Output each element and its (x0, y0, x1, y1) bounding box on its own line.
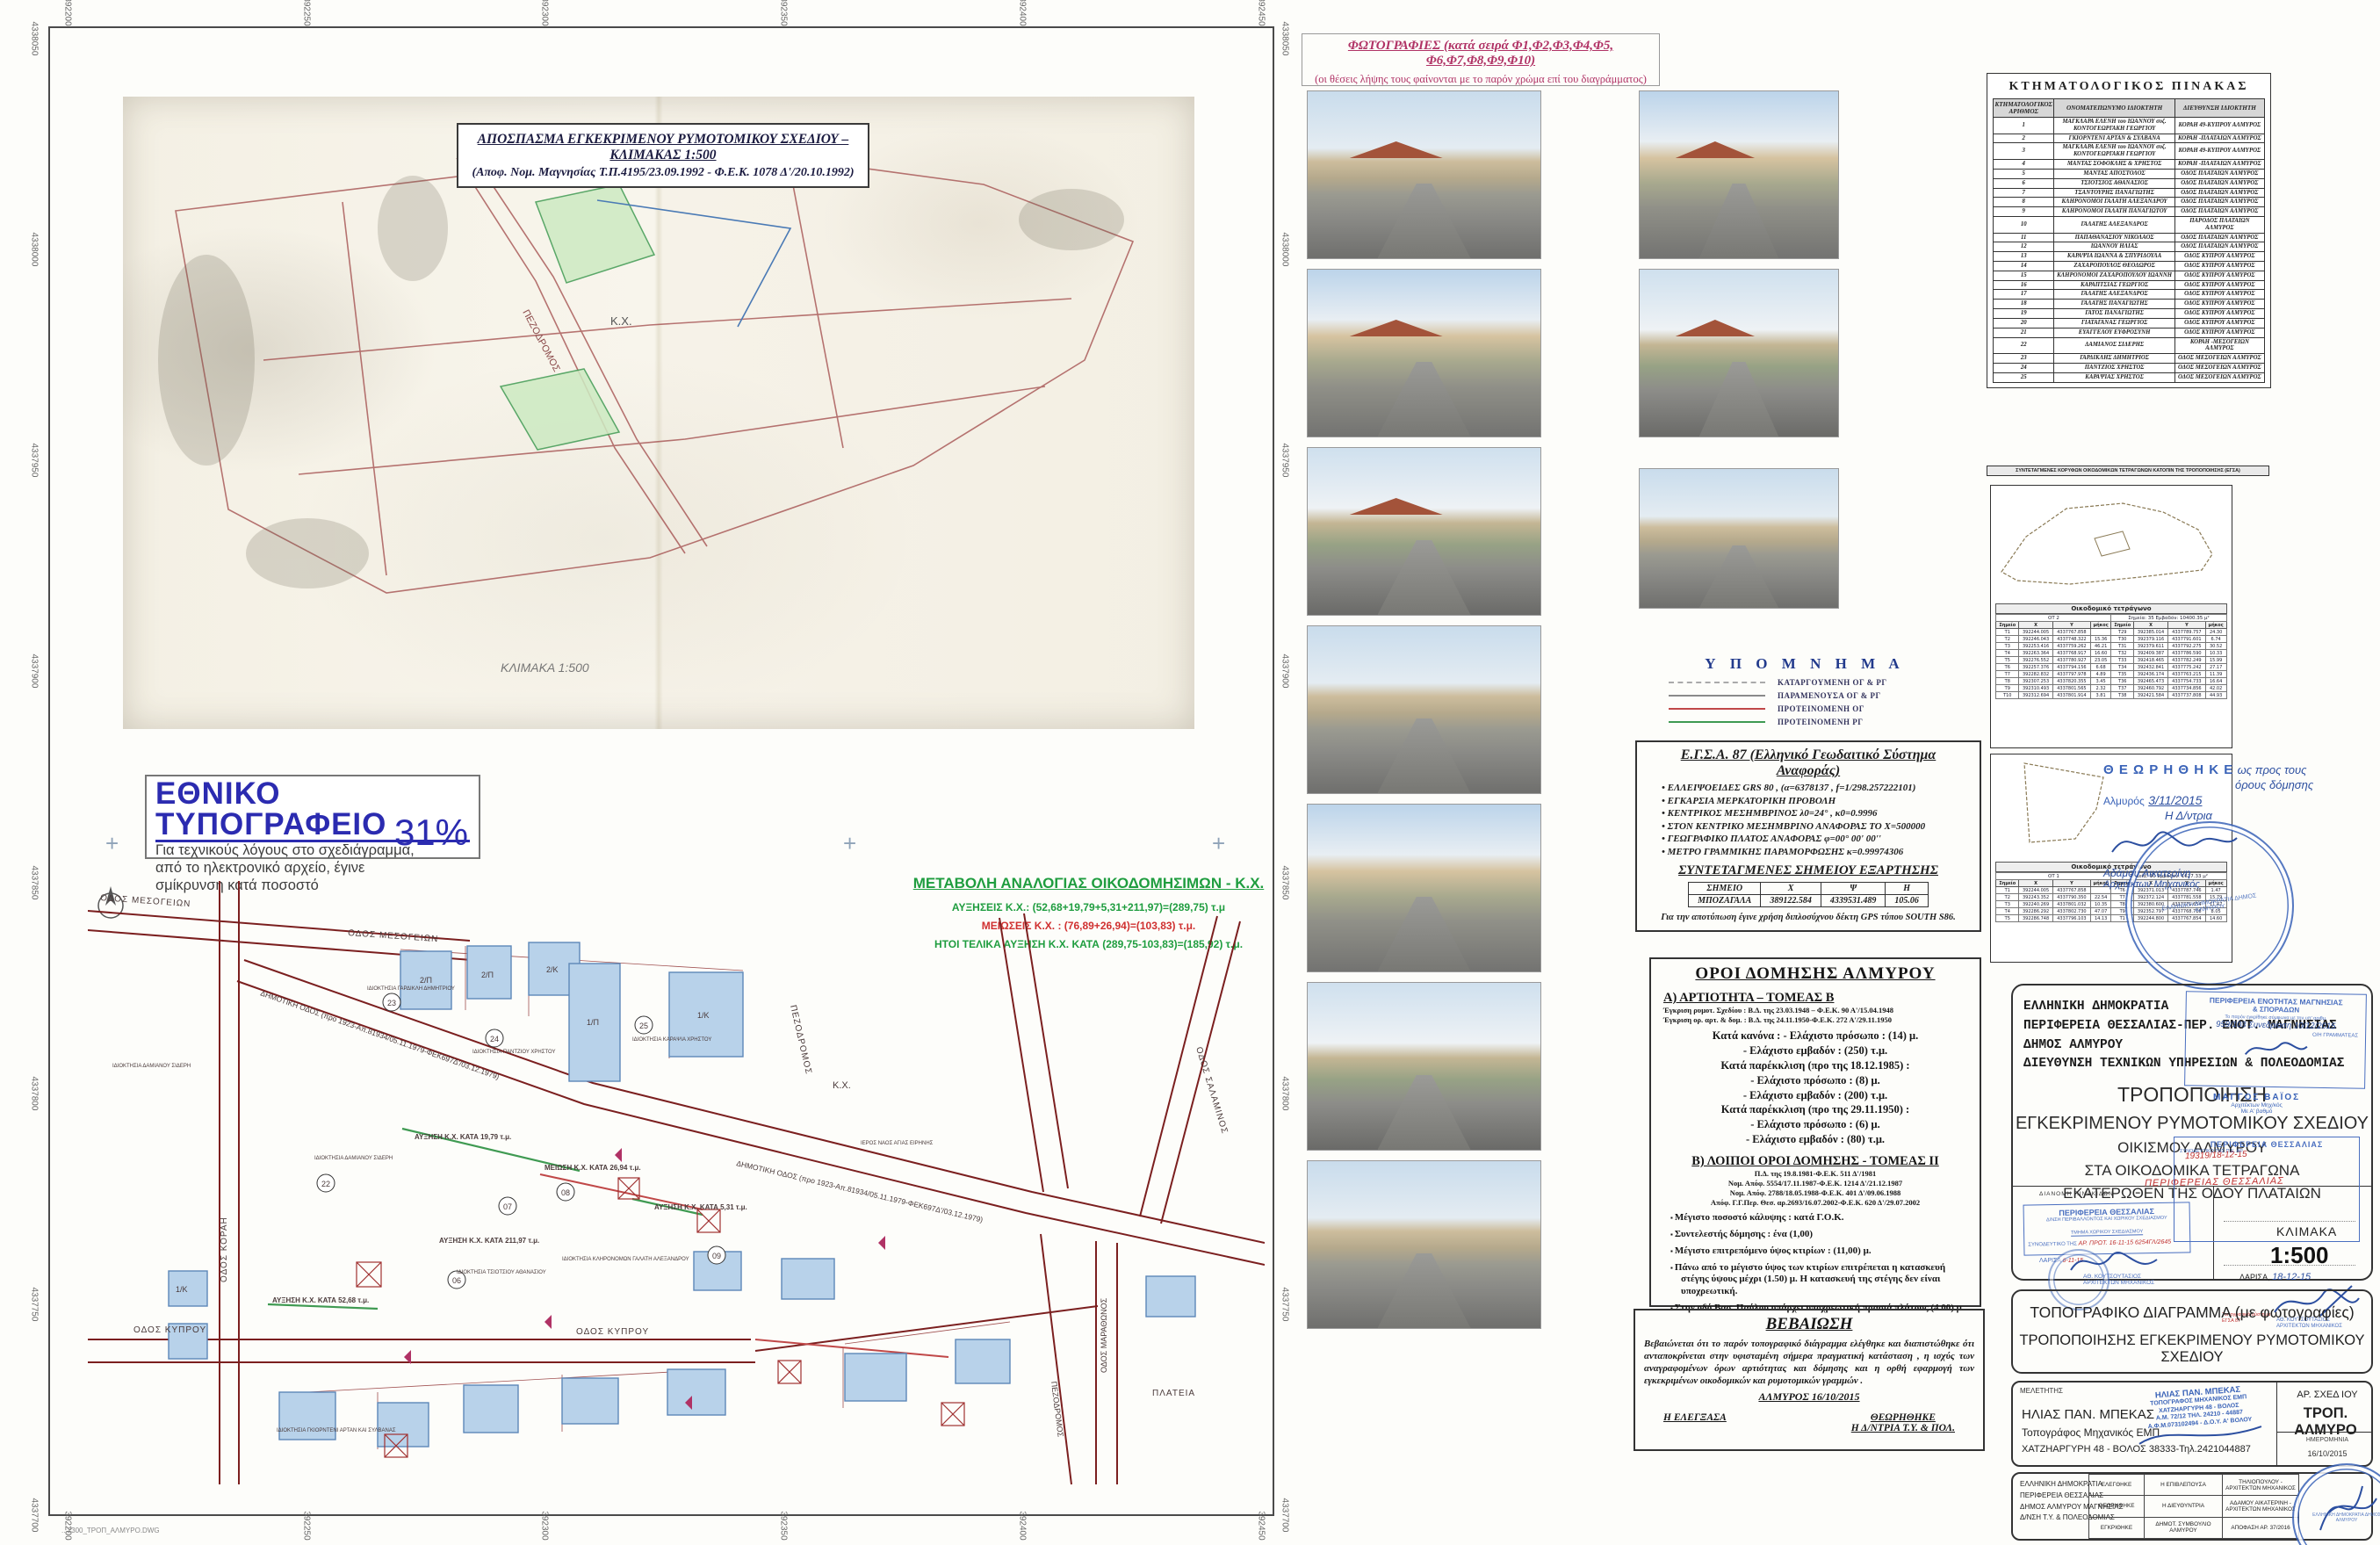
cadastral-row: 10ΓΑΛΑΤΗΣ ΑΛΕΞΑΝΔΡΟΣΠΑΡΟΔΟΣ ΠΛΑΤΑΙΩΝ ΑΛΜ… (1994, 216, 2264, 233)
cadastral-map: 06 07 08 09 22 23 24 25 2/Π2/Π 2/Κ1/Π 1/… (88, 865, 1265, 1493)
section-b-title: Β) ΛΟΙΠΟΙ ΟΡΟΙ ΔΟΜΗΣΗΣ - ΤΟΜΕΑΣ ΙΙ (1663, 1154, 1967, 1169)
grid-coord-label: 4337900 (1280, 654, 1290, 674)
cadastral-row: 22ΔΑΜΙΑΝΟΣ ΣΙΔΕΡΗΣΚΟΡΑΗ -ΜΕΣΟΓΕΙΩΝ ΑΛΜΥΡ… (1994, 337, 2264, 354)
excerpt-subtitle: (Αποφ. Νομ. Μαγνησίας Τ.Π.4195/23.09.199… (458, 166, 868, 180)
svg-text:2/Κ: 2/Κ (546, 965, 559, 974)
grid-coords-top: 392200392250392300392350392400392450 (48, 2, 1271, 21)
annotation-increase-1: ΑΥΞΗΣΗ Κ.Χ. ΚΑΤΑ 19,79 τ.μ. (415, 1133, 511, 1141)
svg-text:24: 24 (490, 1035, 499, 1043)
svg-text:08: 08 (561, 1188, 570, 1197)
excerpt-title-box: ΑΠΟΣΠΑΣΜΑ ΕΓΚΕΚΡΙΜΕΝΟΥ ΡΥΜΟΤΟΜΙΚΟΥ ΣΧΕΔΙ… (457, 123, 869, 188)
cadastral-row: 24ΠΑΝΤΖΙΟΣ ΧΡΗΣΤΟΣΟΔΟΣ ΜΕΣΟΓΕΙΩΝ ΑΛΜΥΡΟΣ (1994, 363, 2264, 372)
grid-coord-label: 392200 (54, 1511, 73, 1540)
kx-label: Κ.Χ. (833, 1080, 851, 1091)
building-rule-line: Κατά παρέκκλιση (προ της 29.11.1950) : (1663, 1102, 1967, 1117)
building-rule-line: Κατά παρέκκλιση (προ της 18.12.1985) : (1663, 1058, 1967, 1073)
grid-coord-label: 4337950 (1280, 444, 1290, 463)
maggos-name: ΜΑΓΓΟΣ ΒΑΪΟΣ Αρχιτέκτων Μηχ/κός Με Α' βα… (2213, 1093, 2300, 1115)
certification-title: ΒΕΒΑΙΩΣΗ (1644, 1315, 1974, 1334)
cadastral-row: 21ΕΥΑΓΓΕΛΟΥ ΕΥΦΡΟΣΥΝΗΟΔΟΣ ΚΥΠΡΟΥ ΑΛΜΥΡΟΣ (1994, 328, 2264, 337)
doc-type-2: ΤΡΟΠΟΠΟΙΗΣΗΣ ΕΓΚΕΚΡΙΜΕΝΟΥ ΡΥΜΟΤΟΜΙΚΟΥ ΣΧ… (2013, 1332, 2371, 1366)
title-block: ΕΛΛΗΝΙΚΗ ΔΗΜΟΚΡΑΤΙΑ ΠΕΡΙΦΕΡΕΙΑ ΘΕΣΣΑΛΙΑΣ… (2011, 984, 2373, 1281)
svg-text:09: 09 (712, 1252, 721, 1260)
surveyor-stamp: ΗΛΙΑΣ ΠΑΝ. ΜΠΕΚΑΣ ΤΟΠΟΓΡΑΦΟΣ ΜΗΧΑΝΙΚΟΣ Ε… (2121, 1383, 2278, 1451)
photo-f6 (1307, 982, 1541, 1151)
magnisias-approval-stamp: ΠΕΡΙΦΕΡΕΙΑ ΕΝΟΤΗΤΑΣ ΜΑΓΝΗΣΙΑΣ & ΣΠΟΡΑΔΩΝ… (2184, 991, 2367, 1089)
date-label: ΗΜΕΡΟΜΗΝΙΑ (2283, 1437, 2371, 1443)
certification-body: Βεβαιώνεται ότι το παρόν τοπογραφικό διά… (1644, 1338, 1974, 1387)
egsa-note: Για την αποτύπωση έγινε χρήση διπλοσύχνο… (1648, 913, 1969, 922)
date-value: 16/10/2015 (2283, 1449, 2371, 1458)
surveyor-box: ΜΕΛΕΤΗΤΗΣ ΗΛΙΑΣ ΠΑΝ. ΜΠΕΚΑΣ Τοπογράφος Μ… (2011, 1381, 2373, 1467)
egsa-title: Ε.Γ.Σ.Α. 87 (Ελληνικό Γεωδαιτικό Σύστημα… (1648, 747, 1969, 779)
street-pezodromos: ΠΕΖΟΔΡΟΜΟΣ (788, 1004, 813, 1075)
church-label: ΙΕΡΟΣ ΝΑΟΣ ΑΓΙΑΣ ΕΙΡΗΝΗΣ (861, 1141, 934, 1146)
surveyor-label: ΜΕΛΕΤΗΤΗΣ (2020, 1387, 2063, 1395)
section-b-ref: Νομ. Απόφ. 5554/17.11.1987-Φ.Ε.Κ. 1214 Δ… (1663, 1179, 1967, 1188)
cadastral-row: 15ΚΛΗΡΟΝΟΜΟΙ ΖΑΧΑΡΟΠΟΥΛΟΥ ΙΩΑΝΝΗΟΔΟΣ ΚΥΠ… (1994, 271, 2264, 280)
plateia-label: ΠΛΑΤΕΙΑ (1152, 1389, 1195, 1398)
cadastral-row: 1ΜΑΓΚΛΑΡΑ ΕΛΕΝΗ του ΙΩΑΝΝΟΥ συζ. ΚΟΝΤΟΓΕ… (1994, 118, 2264, 134)
annotation-increase-3: ΑΥΞΗΣΗ Κ.Χ. ΚΑΤΑ 52,68 τ.μ. (272, 1296, 369, 1304)
cadastral-table-title: ΚΤΗΜΑΤΟΛΟΓΙΚΟΣ ΠΙΝΑΚΑΣ (1987, 74, 2270, 98)
photo-f9 (1639, 269, 1839, 437)
cadastral-row: 23ΓΑΡΔΙΚΛΗΣ ΔΗΜΗΤΡΙΟΣΟΔΟΣ ΜΕΣΟΓΕΙΩΝ ΑΛΜΥ… (1994, 354, 2264, 364)
building-rule-line: - Ελάχιστο εμβαδόν : (200) τ.μ. (1663, 1088, 1967, 1103)
grid-coord-label: 392300 (530, 1511, 550, 1540)
approval-box: ΕΛΛΗΝΙΚΗ ΔΗΜΟΚΡΑΤΙΑ ΠΕΡΙΦΕΡΕΙΑ ΘΕΣΣΑΛΙΑΣ… (2011, 1472, 2373, 1541)
section-a-ref: Έγκριση ορ. αρτ. & δομ. : Β.Δ. της 24.11… (1663, 1015, 1967, 1025)
photo-f5 (1307, 804, 1541, 972)
egsa-coords-title: ΣΥΝΤΕΤΑΓΜΕΝΕΣ ΣΗΜΕΙΟΥ ΕΞΑΡΤΗΣΗΣ (1648, 863, 1969, 878)
building-rule-line: Κατά κανόνα : - Ελάχιστο πρόσωπο : (14) … (1663, 1029, 1967, 1043)
cadastral-row: 3ΜΑΓΚΛΑΡΑ ΕΛΕΝΗ του ΙΩΑΝΝΟΥ συζ. ΚΟΝΤΟΓΕ… (1994, 143, 2264, 160)
grid-coords-bottom: 392200392250392300392350392400392450 (48, 1516, 1271, 1535)
svg-text:22: 22 (321, 1180, 330, 1188)
cadastral-row: 16ΚΑΡΑΠΤΣΙΑΣ ΓΕΩΡΓΙΟΣΟΔΟΣ ΚΥΠΡΟΥ ΑΛΜΥΡΟΣ (1994, 280, 2264, 290)
egsa-bullet: ΕΛΛΕΙΨΟΕΙΔΕΣ GRS 80 , (α=6378137 , f=1/2… (1672, 783, 1969, 793)
building-terms-box: ΟΡΟΙ ΔΟΜΗΣΗΣ ΑΛΜΥΡΟΥ Α) ΑΡΤΙΟΤΗΤΑ – ΤΟΜΕ… (1649, 957, 1981, 1307)
ot1-coords-table: Οικοδομικό τετράγωνο ΟΤ 2 Σημεία: 35 Εμβ… (1995, 603, 2226, 699)
drawing-no-value: ΤΡΟΠ. ΑΛΜΥΡΟ (2276, 1405, 2375, 1439)
cadastral-row: 17ΓΑΛΑΤΗΣ ΑΛΕΞΑΝΔΡΟΣΟΔΟΣ ΚΥΠΡΟΥ ΑΛΜΥΡΟΣ (1994, 290, 2264, 300)
photo-f4 (1307, 625, 1541, 794)
legend-item: ΠΡΟΤΕΙΝΟΜΕΝΗ ΡΓ (1669, 718, 1941, 726)
approval-table: ΕΛΕΓΘΗΚΕ Η ΕΠΙΒΛΕΠΟΥΣΑ ΤΗΛΙΟΠΟΥΛΟΥ - ΑΡΧ… (2088, 1474, 2299, 1539)
drawing-no-label: ΑΡ. ΣΧΕΔ ΙΟΥ (2283, 1390, 2371, 1400)
grid-coord-label: 4337900 (30, 654, 40, 674)
street-kyprou: ΟΔΟΣ ΚΥΠΡΟΥ (133, 1325, 206, 1335)
egsa-bullet: ΣΤΟΝ ΚΕΝΤΡΙΚΟ ΜΕΣΗΜΒΡΙΝΟ ΑΝΑΦΟΡΑΣ ΤΟ Χ=5… (1672, 821, 1969, 832)
excerpt-scale-note: ΚΛΙΜΑΚΑ 1:500 (501, 661, 589, 675)
svg-text:07: 07 (503, 1202, 512, 1211)
legend-item: ΠΡΟΤΕΙΝΟΜΕΝΗ ΟΓ (1669, 704, 1941, 713)
legend-line-proposed-og (1669, 708, 1765, 710)
main-title-2: ΕΓΚΕΚΡΙΜΕΝΟΥ ΡΥΜΟΤΟΜΙΚΟΥ ΣΧΕΔΙΟΥ (2013, 1114, 2371, 1134)
grid-coord-label: 392350 (769, 0, 789, 26)
cadastral-row: 25ΚΑΡΑΨΙΑΣ ΧΡΗΣΤΟΣΟΔΟΣ ΜΕΣΟΓΕΙΩΝ ΑΛΜΥΡΟΣ (1994, 372, 2264, 382)
grid-coord-label: 392300 (530, 0, 550, 26)
svg-text:1/Κ: 1/Κ (697, 1011, 710, 1020)
section-b-ref: Απόφ. Γ.Γ.Περ. Θεσ. αρ.2693/16.07.2002-Φ… (1663, 1198, 1967, 1208)
svg-text:06: 06 (452, 1276, 461, 1285)
excerpt-title: ΑΠΟΣΠΑΣΜΑ ΕΓΚΕΚΡΙΜΕΝΟΥ ΡΥΜΟΤΟΜΙΚΟΥ ΣΧΕΔΙ… (458, 132, 868, 163)
egsa-bullet: ΜΕΤΡΟ ΓΡΑΜΜΙΚΗΣ ΠΑΡΑΜΟΡΦΩΣΗΣ κ=0.9997430… (1672, 847, 1969, 857)
cadastral-row: 7ΤΣΑΝΤΟΥΡΗΣ ΠΑΝΑΓΙΩΤΗΣΟΔΟΣ ΠΛΑΤΑΙΩΝ ΑΛΜΥ… (1994, 188, 2264, 198)
svg-text:1/Κ: 1/Κ (176, 1285, 188, 1294)
grid-coord-label: 4337800 (1280, 1076, 1290, 1095)
grid-coord-label: 392400 (1008, 1511, 1028, 1540)
svg-text:2/Π: 2/Π (420, 976, 432, 985)
grid-coord-label: 4338000 (30, 233, 40, 252)
cadastral-row: 11ΠΑΠΑΘΑΝΑΣΙΟΥ ΝΙΚΟΛΑΟΣΟΔΟΣ ΠΛΑΤΑΙΩΝ ΑΛΜ… (1994, 233, 2264, 242)
sign-right-2: Η Δ/ΝΤΡΙΑ Τ.Υ. & ΠΟΛ. (1851, 1423, 1955, 1433)
approval-handwriting: Θ Ε Ω Ρ Η Θ Η Κ Ε ως προς τους όρους δόμ… (2103, 762, 2376, 890)
photo-f8 (1639, 90, 1839, 259)
building-rule-line: - Ελάχιστο πρόσωπο : (8) μ. (1663, 1073, 1967, 1088)
street-korai: ΟΔΟΣ ΚΟΡΑΗ (220, 1217, 229, 1282)
egsa-bullet: ΓΕΩΓΡΑΦΙΚΟ ΠΛΑΤΟΣ ΑΝΑΦΟΡΑΣ φ=00° 00' 00'… (1672, 834, 1969, 844)
street-mesogeion: ΟΔΟΣ ΜΕΣΟΓΕΙΩΝ (100, 893, 191, 909)
property-label: ΙΔΙΟΚΤΗΣΙΑ ΤΣΙΟΤΣΙΟΥ ΑΘΑΝΑΣΙΟΥ (457, 1270, 546, 1275)
approval-row: ΕΓΚΡΙΘΗΚΕ ΔΗΜΟΤ. ΣΥΜΒΟΥΛΙΟ ΑΛΜΥΡΟΥ ΑΠΟΦΑ… (2089, 1517, 2299, 1538)
photo-f3 (1307, 447, 1541, 616)
excerpt-pezodromos-label: ΠΕΖΟΔΡΟΜΟΣ (520, 308, 561, 374)
photo-f2 (1307, 269, 1541, 437)
svg-text:23: 23 (387, 999, 396, 1007)
property-label: ΙΔΙΟΚΤΗΣΙΑ ΔΑΜΙΑΝΟΥ ΣΙΔΕΡΗ (314, 1156, 393, 1161)
street-kyprou-2: ΟΔΟΣ ΚΥΠΡΟΥ (576, 1327, 649, 1337)
doc-type-box: ΤΟΠΟΓΡΑΦΙΚΟ ΔΙΑΓΡΑΜΜΑ (με φωτογραφίες) Τ… (2011, 1289, 2373, 1374)
annotation-increase-2: ΑΥΞΗΣΗ Κ.Χ. ΚΑΤΑ 5,31 τ.μ. (654, 1203, 747, 1211)
grid-coord-label: 392200 (54, 0, 73, 26)
grid-coord-label: 392350 (769, 1511, 789, 1540)
legend-line-proposed-rg (1669, 721, 1765, 723)
photos-subtitle: (οι θέσεις λήψης τους φαίνονται με το πα… (1302, 73, 1659, 86)
property-label: ΙΔΙΟΚΤΗΣΙΑ ΓΑΡΔΙΚΛΗ ΔΗΜΗΤΡΙΟΥ (367, 986, 455, 992)
grid-coord-label: 4337750 (30, 1287, 40, 1306)
signer-name: ΑΘ. ΚΟΥΤΣΟΥΤΑΣΙΟΣΑΡΧΙΤΕΚΤΩΝ ΜΗΧΑΝΙΚΟΣ (2083, 1274, 2154, 1286)
grid-coords-left: 4338050433800043379504337900433785043378… (25, 26, 44, 1513)
egsa-coords-table: ΣΗΜΕΙΟΧΨΗ ΜΠΟΖΑΓΑΛΑ389122.5844339531.489… (1688, 882, 1929, 907)
excerpt-map-scan: ΠΕΖΟΔΡΟΜΟΣ Κ.Χ. ΚΛΙΜΑΚΑ 1:500 ΑΠΟΣΠΑΣΜΑ … (123, 97, 1194, 729)
building-rule-line: - Ελάχιστο εμβαδόν : (250) τ.μ. (1663, 1043, 1967, 1058)
registration-cross: + (105, 830, 119, 857)
signature-scribble (2311, 1469, 2380, 1545)
svg-text:25: 25 (639, 1022, 648, 1030)
section-b-bullet: Μέγιστο ποσοστό κάλυψης : κατά Γ.Ο.Κ. (1681, 1212, 1967, 1224)
grid-coord-label: 4337850 (30, 865, 40, 884)
legend-item: ΚΑΤΑΡΓΟΥΜΕΝΗ ΟΓ & ΡΓ (1669, 678, 1941, 687)
grid-coord-label: 4338000 (1280, 233, 1290, 252)
grid-coord-label: 392450 (1246, 1511, 1266, 1540)
grid-coord-label: 4337800 (30, 1076, 40, 1095)
signature-scribble (2103, 822, 2244, 863)
building-rule-line: - Ελάχιστο πρόσωπο : (6) μ. (1663, 1117, 1967, 1132)
property-label: ΙΔΙΟΚΤΗΣΙΑ ΚΑΡΑΨΙΑ ΧΡΗΣΤΟΥ (632, 1037, 711, 1043)
grid-coord-label: 392450 (1246, 0, 1266, 26)
thessalias-stamp: ΠΕΡΙΦΕΡΕΙΑ ΘΕΣΣΑΛΙΑΣ ΣΥΝΟΔΕΥΤΙΚΟ ΤΗΣ Π.Ε… (2174, 1137, 2360, 1242)
section-a-title: Α) ΑΡΤΙΟΤΗΤΑ – ΤΟΜΕΑΣ Β (1663, 991, 1967, 1006)
approval-row: ΕΛΕΓΘΗΚΕ Η ΕΠΙΒΛΕΠΟΥΣΑ ΤΗΛΙΟΠΟΥΛΟΥ - ΑΡΧ… (2089, 1475, 2299, 1496)
ot1-polygon-sketch (1991, 486, 2230, 602)
section-b-bullet: Μέγιστο επιτρεπόμενο ύψος κτιρίων : (11,… (1681, 1245, 1967, 1258)
photos-header-box: ΦΩΤΟΓΡΑΦΙΕΣ (κατά σειρά Φ1,Φ2,Φ3,Φ4,Φ5, … (1302, 33, 1660, 86)
cadastral-row: 6ΤΣΙΟΤΣΙΟΣ ΑΘΑΝΑΣΙΟΣΟΔΟΣ ΠΛΑΤΑΙΩΝ ΑΛΜΥΡΟ… (1994, 178, 2264, 188)
cadastral-row: 9ΚΛΗΡΟΝΟΜΟΙ ΓΑΛΑΤΗ ΠΑΝΑΓΙΩΤΟΥΟΔΟΣ ΠΛΑΤΑΙ… (1994, 207, 2264, 217)
cadastral-row: 5ΜΑΝΤΑΣ ΑΠΟΣΤΟΛΟΣΟΔΟΣ ΠΛΑΤΑΙΩΝ ΑΛΜΥΡΟΣ (1994, 169, 2264, 178)
cadastral-row: 19ΓΑΤΟΣ ΠΑΝΑΓΙΩΤΗΣΟΔΟΣ ΚΥΠΡΟΥ ΑΛΜΥΡΟΣ (1994, 309, 2264, 319)
street-mesogeion-2: ΟΔΟΣ ΜΕΣΟΓΕΙΩΝ (348, 928, 439, 944)
doc-type-1: ΤΟΠΟΓΡΑΦΙΚΟ ΔΙΑΓΡΑΜΜΑ (με φωτογραφίες) (2013, 1303, 2371, 1322)
cadastral-row: 13ΚΑΡΑΨΙΑ ΙΩΑΝΝΑ & ΣΠΥΡΙΔΟΥΛΑΟΔΟΣ ΚΥΠΡΟΥ… (1994, 252, 2264, 262)
legend-title: Υ Π Ο Μ Ν Η Μ Α (1669, 655, 1941, 673)
grid-coord-label: 4338050 (30, 22, 40, 41)
annotation-increase-4: ΑΥΞΗΣΗ Κ.Χ. ΚΑΤΑ 211,97 τ.μ. (439, 1237, 539, 1245)
print-office-stamp: ΕΘΝΙΚΟ ΤΥΠΟΓΡΑΦΕΙΟ Για τεχνικούς λόγους … (145, 775, 480, 859)
building-terms-title: ΟΡΟΙ ΔΟΜΗΣΗΣ ΑΛΜΥΡΟΥ (1663, 964, 1967, 984)
photo-f10 (1639, 468, 1839, 609)
sign-left: Η ΕΛΕΓΞΑΣΑ (1663, 1412, 1727, 1433)
signature-scribble (2240, 1036, 2311, 1060)
registration-cross: + (843, 830, 856, 857)
grid-coord-label: 4337700 (1280, 1498, 1290, 1517)
coords-footer-bar: ΣΥΝΤΕΤΑΓΜΕΝΕΣ ΚΟΡΥΦΩΝ ΟΙΚΟΔΟΜΙΚΩΝ ΤΕΤΡΑΓ… (1987, 466, 2269, 476)
excerpt-kx-label: Κ.Χ. (610, 314, 632, 328)
section-b-ref: Π.Δ. της 19.8.1981-Φ.Ε.Κ. 511 Δ'/1981 (1663, 1169, 1967, 1179)
registration-cross: + (1212, 830, 1225, 857)
grid-coords-right: 4338050433800043379504337900433785043378… (1275, 26, 1295, 1513)
photo-f1 (1307, 90, 1541, 259)
section-a-ref: Έγκριση ρυμοτ. Σχεδίου : Β.Δ. της 23.03.… (1663, 1006, 1967, 1015)
demolition-boxes (357, 1178, 964, 1457)
cadastral-row: 20ΓΙΑΤΑΓΑΝΑΣ ΓΕΩΡΓΙΟΣΟΔΟΣ ΚΥΠΡΟΥ ΑΛΜΥΡΟΣ (1994, 318, 2264, 328)
grid-coord-label: 4338050 (1280, 22, 1290, 41)
legend-line-remaining (1669, 695, 1765, 697)
dianomi-label: ΔΙΑΝΟΜΗ ΠΙΝΑΚΙΔΩΝ (2039, 1191, 2114, 1197)
section-b-bullet: Συντελεστής δόμησης : ένα (1,00) (1681, 1229, 1967, 1241)
sign-right-1: ΘΕΩΡΗΘΗΚΕ (1851, 1412, 1955, 1423)
photo-f7 (1307, 1160, 1541, 1329)
annotation-decrease-1: ΜΕΙΩΣΗ Κ.Χ. ΚΑΤΑ 26,94 τ.μ. (545, 1164, 641, 1172)
plot-file-note: ...2300_ΤΡΟΠ_ΑΛΜΥΡΟ.DWG (61, 1527, 160, 1534)
section-b-ref: Νομ. Απόφ. 2788/18.05.1988-Φ.Ε.Κ. 401 Δ'… (1663, 1188, 1967, 1198)
theorithike-label: Θ Ε Ω Ρ Η Θ Η Κ Ε (2103, 762, 2233, 777)
map-annotations: ΑΥΞΗΣΗ Κ.Χ. ΚΑΤΑ 19,79 τ.μ. ΜΕΙΩΣΗ Κ.Χ. … (112, 986, 934, 1433)
excerpt-map-drawing: ΠΕΖΟΔΡΟΜΟΣ Κ.Χ. ΚΛΙΜΑΚΑ 1:500 (123, 97, 1194, 729)
print-office-percent: 31% (394, 812, 468, 854)
grid-coord-label: 4337750 (1280, 1287, 1290, 1306)
legend-item: ΠΑΡΑΜΕΝΟΥΣΑ ΟΓ & ΡΓ (1669, 691, 1941, 700)
cadastral-row: 8ΚΛΗΡΟΝΟΜΟΙ ΓΑΛΑΤΗ ΑΛΕΞΑΝΔΡΟΥΟΔΟΣ ΠΛΑΤΑΙ… (1994, 198, 2264, 207)
grid-coord-label: 392250 (292, 0, 311, 26)
certification-box: ΒΕΒΑΙΩΣΗ Βεβαιώνεται ότι το παρόν τοπογρ… (1634, 1309, 1985, 1451)
egsa-bullet: ΚΕΝΤΡΙΚΟΣ ΜΕΣΗΜΒΡΙΝΟΣ λ0=24° , κ0=0.9996 (1672, 808, 1969, 819)
svg-text:1/Π: 1/Π (587, 1018, 599, 1027)
property-label: ΙΔΙΟΚΤΗΣΙΑ ΓΚΙΟΡΝΤΕΝΙ ΑΡΤΑΝ ΚΑΙ ΣΥΛΒΑΝΑΣ (277, 1428, 396, 1433)
street-marathonos: ΟΔΟΣ ΜΑΡΑΘΩΝΟΣ (1100, 1297, 1108, 1373)
cadastral-table: ΚΤΗΜΑΤΟΛΟΓΙΚΟΣ ΠΙΝΑΚΑΣ ΚΤΗΜΑΤΟΛΟΓΙΚΟΣ ΑΡ… (1987, 73, 2271, 388)
cadastral-row: 2ΓΚΙΟΡΝΤΕΝΙ ΑΡΤΑΝ & ΣΥΛΒΑΝΑΚΟΡΑΗ -ΠΛΑΤΑΙ… (1994, 134, 2264, 143)
approval-row: ΘΕΩΡΗΘΗΚΕ Η ΔΙΕΥΘΥΝΤΡΙΑ ΑΔΑΜΟΥ ΑΙΚΑΤΕΡΙΝ… (2089, 1496, 2299, 1517)
building-rule-line: - Ελάχιστο εμβαδόν : (80) τ.μ. (1663, 1132, 1967, 1147)
topographic-drawing-sheet: 392200392250392300392350392400392450 392… (0, 0, 2380, 1545)
grid-coord-label: 392250 (292, 1511, 311, 1540)
photos-title: ΦΩΤΟΓΡΑΦΙΕΣ (κατά σειρά Φ1,Φ2,Φ3,Φ4,Φ5, … (1302, 39, 1659, 69)
street-dimotiki-2: ΔΗΜΟΤΙΚΗ ΟΔΟΣ (προ 1923-Απ.81934/05.11.1… (736, 1159, 984, 1224)
grid-coord-label: 4337700 (30, 1498, 40, 1517)
legend-line-abolished (1669, 682, 1765, 683)
cadastral-row: 4ΜΑΝΤΑΣ ΣΟΦΟΚΛΗΣ & ΧΡΗΣΤΟΣΚΟΡΑΗ -ΠΛΑΤΑΙΩ… (1994, 160, 2264, 170)
street-labels: ΟΔΟΣ ΜΕΣΟΓΕΙΩΝ ΟΔΟΣ ΜΕΣΟΓΕΙΩΝ ΟΔΟΣ ΚΟΡΑΗ… (100, 893, 1230, 1438)
certification-place-date: ΑΛΜΥΡΟΣ 16/10/2015 (1644, 1390, 1974, 1404)
street-salaminos: ΟΔΟΣ ΣΑΛΑΜΙΝΟΣ (1194, 1046, 1230, 1136)
property-label: ΙΔΙΟΚΤΗΣΙΑ ΚΛΗΡΟΝΟΜΩΝ ΓΑΛΑΤΗ ΑΛΕΞΑΝΔΡΟΥ (562, 1257, 689, 1262)
grid-coord-label: 4337850 (1280, 865, 1290, 884)
property-label: ΙΔΙΟΚΤΗΣΙΑ ΔΑΜΙΑΝΟΥ ΣΙΔΕΡΗ (112, 1064, 191, 1069)
egsa-bullet: ΕΓΚΑΡΣΙΑ ΜΕΡΚΑΤΟΡΙΚΗ ΠΡΟΒΟΛΗ (1672, 796, 1969, 806)
grid-coord-label: 392400 (1008, 0, 1028, 26)
svg-text:2/Π: 2/Π (481, 971, 494, 979)
grid-coord-label: 4337950 (30, 444, 40, 463)
cadastral-row: 14ΖΑΧΑΡΟΠΟΥΛΟΣ ΘΕΟΔΩΡΟΣΟΔΟΣ ΚΥΠΡΟΥ ΑΛΜΥΡ… (1994, 262, 2264, 271)
section-b-bullet: Πάνω από το μέγιστο ύψος των κτιρίων επι… (1681, 1262, 1967, 1298)
egsa-box: Ε.Γ.Σ.Α. 87 (Ελληνικό Γεωδαιτικό Σύστημα… (1635, 740, 1981, 932)
street-dimotiki: ΔΗΜΟΤΙΚΗ ΟΔΟΣ (προ 1923-Απ.81934/05.11.1… (259, 988, 501, 1081)
cadastral-row: 12ΙΩΑΝΝΟΥ ΗΛΙΑΣΟΔΟΣ ΠΛΑΤΑΙΩΝ ΑΛΜΥΡΟΣ (1994, 242, 2264, 252)
legend: Υ Π Ο Μ Ν Η Μ Α ΚΑΤΑΡΓΟΥΜΕΝΗ ΟΓ & ΡΓ ΠΑΡ… (1669, 655, 1941, 731)
cadastral-row: 18ΓΑΛΑΤΗΣ ΠΑΝΑΓΙΩΤΗΣΟΔΟΣ ΚΥΠΡΟΥ ΑΛΜΥΡΟΣ (1994, 300, 2264, 309)
property-label: ΙΔΙΟΚΤΗΣΙΑ ΠΑΝΤΖΙΟΥ ΧΡΗΣΤΟΥ (472, 1050, 556, 1055)
ot-panel-1: Οικοδομικό τετράγωνο ΟΤ 2 Σημεία: 35 Εμβ… (1990, 485, 2232, 748)
